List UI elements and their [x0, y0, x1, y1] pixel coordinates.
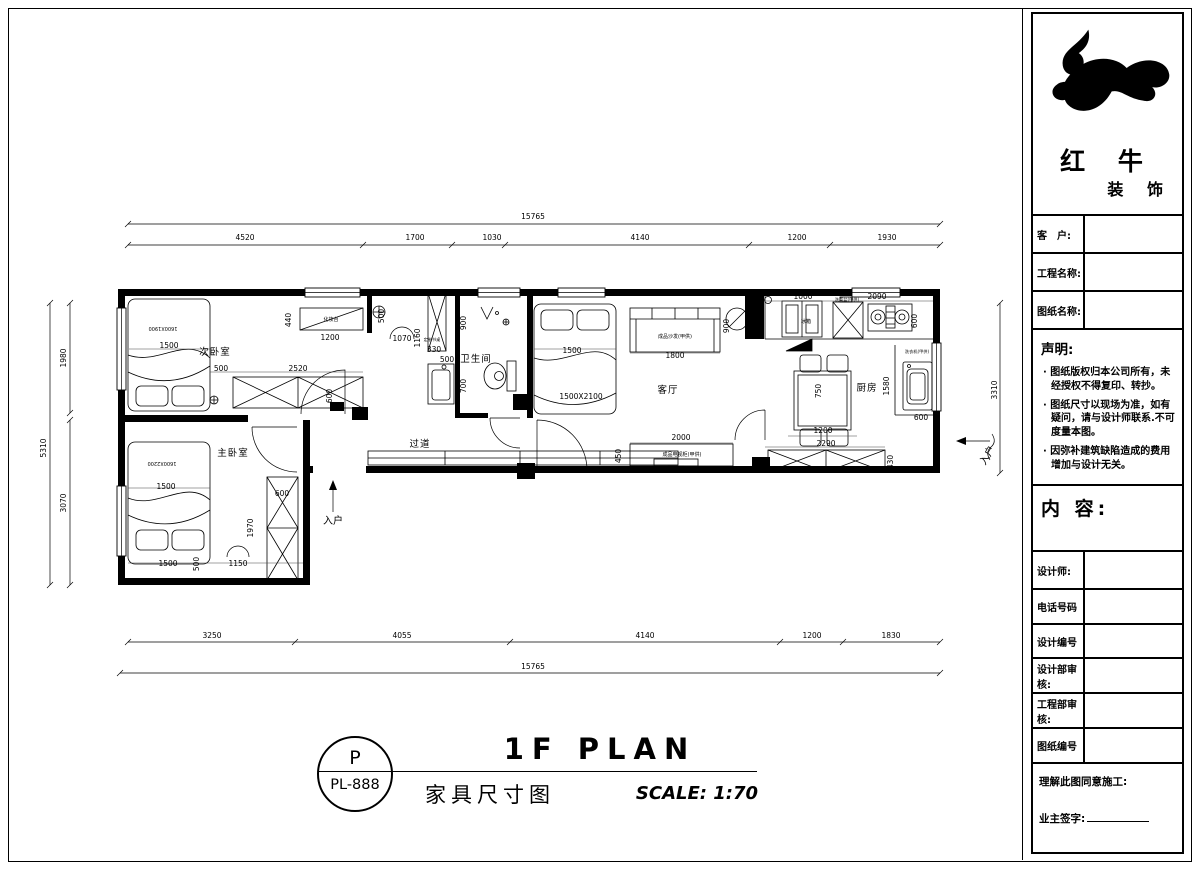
dim-1000-kitchen: 1000 — [793, 292, 812, 301]
dim-1580-washer: 1580 — [882, 376, 891, 395]
drawing-no-label: 图纸编号 — [1033, 729, 1085, 762]
dim-2520: 2520 — [288, 364, 307, 373]
dim-1200: 1200 — [320, 333, 339, 342]
dim-600-counter: 600 — [910, 314, 919, 329]
dim-top-2: 1700 — [405, 233, 424, 242]
content-label: 内 容: — [1041, 498, 1109, 520]
designer-label: 设计师: — [1033, 552, 1085, 588]
statement-title: 声明: — [1041, 338, 1176, 358]
room-label-bedroom2: 次卧室 — [199, 346, 231, 358]
entry-label-bottom: 入户 — [323, 514, 343, 527]
label-bed2-size: 1600X1900 — [149, 325, 178, 331]
eng-review-label: 工程部审核: — [1033, 694, 1085, 727]
project-label: 工程名称: — [1033, 254, 1085, 290]
dim-1500b-master: 1500 — [158, 559, 177, 568]
dim-left-1: 1980 — [59, 348, 68, 367]
row-drawing-no: 图纸编号 — [1031, 727, 1184, 764]
customer-label: 客 户: — [1033, 216, 1085, 252]
dim-500b: 500 — [440, 355, 455, 364]
label-sofa: 成品沙发(甲供) — [658, 333, 692, 340]
statement-item: 图纸尺寸以现场为准，如有疑问，请与设计师联系.不可度量本图。 — [1041, 399, 1176, 440]
room-label-corridor: 过道 — [409, 438, 430, 450]
stamp-code: PL-888 — [319, 777, 391, 793]
dim-600-wardrobe: 600 — [275, 489, 290, 498]
dim-600: 600 — [325, 389, 334, 404]
design-review-label: 设计部审核: — [1033, 659, 1085, 692]
brand-subname: 装 饰 — [1107, 176, 1172, 200]
dim-left-total: 5310 — [39, 438, 48, 457]
dim-500c: 500 — [214, 364, 229, 373]
label-tv-cabinet: 成品电视柜(甲供) — [663, 451, 702, 458]
dim-1970-master: 1970 — [246, 518, 255, 537]
dim-bottom-1: 3250 — [202, 631, 221, 640]
dim-1500-master: 1500 — [156, 482, 175, 491]
row-design-review: 设计部审核: — [1031, 657, 1184, 694]
dim-1500-bed2: 1500 — [159, 341, 178, 350]
content-box: 内 容: — [1031, 484, 1184, 552]
panel-divider-line — [1022, 8, 1023, 860]
title-block: 红 牛 装 饰 客 户: 工程名称: 图纸名称: 声明: 图纸版权归本公司所有，… — [1031, 14, 1184, 854]
plan-title: 1F PLAN — [440, 732, 760, 766]
approval-line: 理解此图同意施工: — [1039, 774, 1176, 789]
dim-top-3: 1030 — [482, 233, 501, 242]
dim-top-total: 15765 — [521, 212, 545, 221]
drawing-sheet: 次卧室 卫生间 客厅 厨房 主卧室 过道 入户 入户 化妆台 定制书桌 成品沙发… — [0, 0, 1200, 870]
dim-750-table: 750 — [814, 384, 823, 399]
label-washer: 洗衣机(甲供) — [905, 348, 930, 355]
plan-subtitle: 家具尺寸图 — [425, 779, 555, 809]
stamp-letter: P — [319, 747, 391, 769]
dim-bottom-total: 15765 — [521, 662, 545, 671]
dim-top-5: 1200 — [787, 233, 806, 242]
row-drawing-name: 图纸名称: — [1031, 290, 1184, 330]
entry-label-right: 入户 — [976, 443, 997, 467]
row-customer: 客 户: — [1031, 214, 1184, 254]
logo-box: 红 牛 装 饰 — [1031, 12, 1184, 216]
phone-label: 电话号码 — [1033, 590, 1085, 623]
dim-right-total: 3310 — [990, 380, 999, 399]
row-project: 工程名称: — [1031, 252, 1184, 292]
title-bar-line — [318, 771, 757, 772]
dim-330: 330 — [427, 345, 442, 354]
bull-logo — [1033, 14, 1182, 139]
dim-top-6: 1930 — [877, 233, 896, 242]
dim-bottom-3: 4140 — [635, 631, 654, 640]
design-no-label: 设计编号 — [1033, 625, 1085, 657]
dim-500-master: 500 — [192, 557, 201, 572]
dim-1500-living: 1500 — [562, 346, 581, 355]
dim-2000-tv: 2000 — [671, 433, 690, 442]
row-eng-review: 工程部审核: — [1031, 692, 1184, 729]
drawing-stamp: P PL-888 — [317, 736, 393, 812]
dim-top-4: 4140 — [630, 233, 649, 242]
dim-500: 500 — [377, 309, 386, 324]
label-living-bed-size: 1500X2100 — [559, 392, 603, 401]
room-label-bath: 卫生间 — [460, 353, 492, 365]
dim-bottom-2: 4055 — [392, 631, 411, 640]
dim-450-tv: 450 — [614, 449, 623, 464]
dim-top-1: 4520 — [235, 233, 254, 242]
label-sink: 洗菜盆(甲供) — [835, 296, 860, 303]
dim-2090-kitchen: 2090 — [867, 292, 886, 301]
dim-440: 440 — [284, 313, 293, 328]
brand-name: 红 牛 — [1033, 142, 1182, 178]
signature-line — [1087, 811, 1149, 822]
dim-1160: 1160 — [413, 328, 422, 347]
scale-note: SCALE: 1:70 — [610, 783, 758, 804]
dim-900-bath: 900 — [459, 316, 468, 331]
dim-bottom-5: 1830 — [881, 631, 900, 640]
label-master-bed-size: 1600X2200 — [148, 460, 177, 466]
drawing-name-label: 图纸名称: — [1033, 292, 1085, 328]
room-label-living: 客厅 — [657, 384, 678, 396]
dim-1200-table: 1200 — [813, 426, 832, 435]
dim-1800-sofa: 1800 — [665, 351, 684, 360]
approval-box: 理解此图同意施工: 业主签字: — [1031, 762, 1184, 854]
dim-left-2: 3070 — [59, 493, 68, 512]
label-desk: 定制书桌 — [424, 336, 442, 343]
dim-900-living: 900 — [722, 319, 731, 334]
dim-1070: 1070 — [392, 334, 411, 343]
dim-700-bath: 700 — [459, 379, 468, 394]
statement-box: 声明: 图纸版权归本公司所有，未经授权不得复印、转抄。 图纸尺寸以现场为准，如有… — [1031, 328, 1184, 486]
room-label-kitchen: 厨房 — [856, 382, 877, 394]
dim-600-washer: 600 — [914, 413, 929, 422]
label-dresser: 化妆台 — [323, 316, 338, 323]
row-designer: 设计师: — [1031, 550, 1184, 590]
signature-label: 业主签字: — [1039, 813, 1085, 825]
row-design-no: 设计编号 — [1031, 623, 1184, 659]
dim-bottom-4: 1200 — [802, 631, 821, 640]
label-fridge: 冰箱 — [801, 318, 811, 325]
dim-2290-kitchen: 2290 — [816, 439, 835, 448]
room-label-master: 主卧室 — [217, 447, 249, 459]
signature-row: 业主签字: — [1039, 811, 1176, 826]
dim-1150-master: 1150 — [228, 559, 247, 568]
statement-item: 因弥补建筑缺陷造成的费用增加与设计无关。 — [1041, 445, 1176, 473]
dim-430-cab: 430 — [886, 455, 895, 470]
row-phone: 电话号码 — [1031, 588, 1184, 625]
statement-item: 图纸版权归本公司所有，未经授权不得复印、转抄。 — [1041, 366, 1176, 394]
